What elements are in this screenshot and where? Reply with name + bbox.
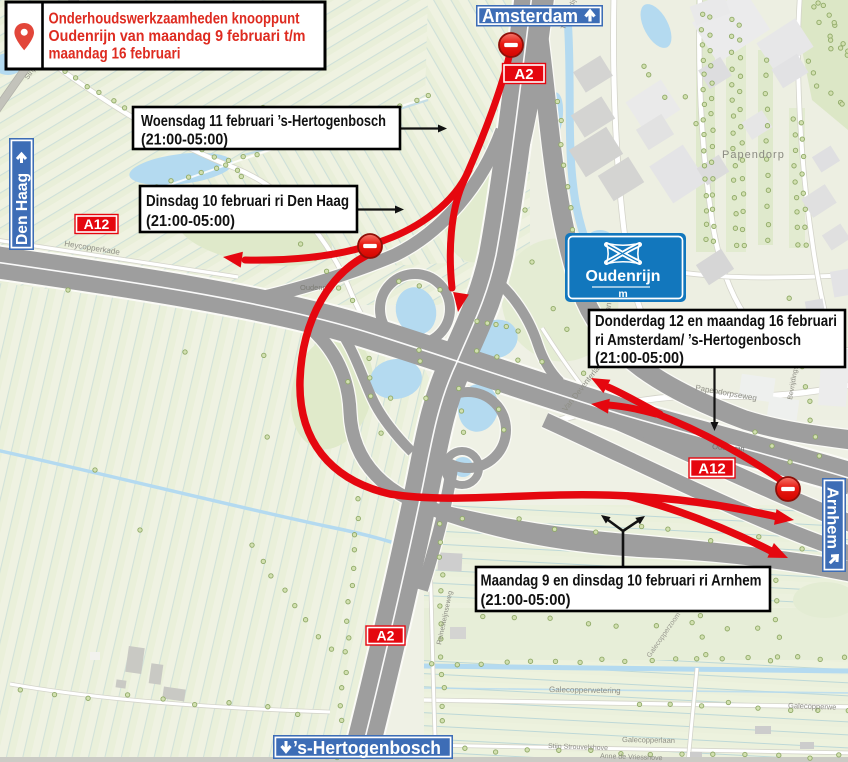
svg-text:(21:00-05:00): (21:00-05:00)	[481, 592, 571, 609]
svg-text:A12: A12	[698, 460, 726, 477]
svg-text:Maandag 9 en dinsdag 10 februa: Maandag 9 en dinsdag 10 februari ri Arnh…	[481, 573, 762, 590]
svg-text:Arnhem: Arnhem	[824, 487, 841, 549]
svg-text:(21:00-05:00): (21:00-05:00)	[146, 213, 235, 230]
svg-text:maandag 16 februari: maandag 16 februari	[49, 46, 181, 63]
svg-text:Galecopperwe: Galecopperwe	[788, 701, 837, 712]
svg-text:Galecopperwetering: Galecopperwetering	[549, 685, 621, 695]
svg-text:A12: A12	[84, 216, 110, 232]
svg-text:ri Amsterdam/ ’s-Hertogenbosch: ri Amsterdam/ ’s-Hertogenbosch	[595, 332, 801, 349]
svg-text:Amsterdam: Amsterdam	[482, 6, 578, 26]
svg-text:(21:00-05:00): (21:00-05:00)	[141, 132, 228, 149]
svg-text:(21:00-05:00): (21:00-05:00)	[595, 350, 684, 367]
svg-text:A2: A2	[377, 628, 395, 644]
svg-text:Oudenrijn: Oudenrijn	[586, 268, 661, 285]
svg-text:m: m	[618, 288, 627, 300]
svg-text:Woensdag 11 februari ’s-Hertog: Woensdag 11 februari ’s-Hertogenbosch	[141, 113, 386, 130]
svg-text:Galecopperlaan: Galecopperlaan	[622, 735, 675, 745]
svg-text:Dinsdag 10 februari ri Den Haa: Dinsdag 10 februari ri Den Haag	[146, 193, 349, 210]
svg-text:’s-Hertogenbosch: ’s-Hertogenbosch	[293, 738, 441, 758]
svg-text:Den Haag: Den Haag	[14, 173, 31, 245]
svg-text:A2: A2	[514, 66, 533, 83]
svg-text:Donderdag 12 en maandag 16 feb: Donderdag 12 en maandag 16 februari	[595, 313, 837, 330]
svg-text:Oudenrijn van maandag 9 februa: Oudenrijn van maandag 9 februari t/m	[49, 28, 306, 45]
svg-text:Onderhoudswerkzaamheden knoopp: Onderhoudswerkzaamheden knooppunt	[49, 11, 300, 28]
svg-text:Papendorp: Papendorp	[722, 149, 785, 161]
